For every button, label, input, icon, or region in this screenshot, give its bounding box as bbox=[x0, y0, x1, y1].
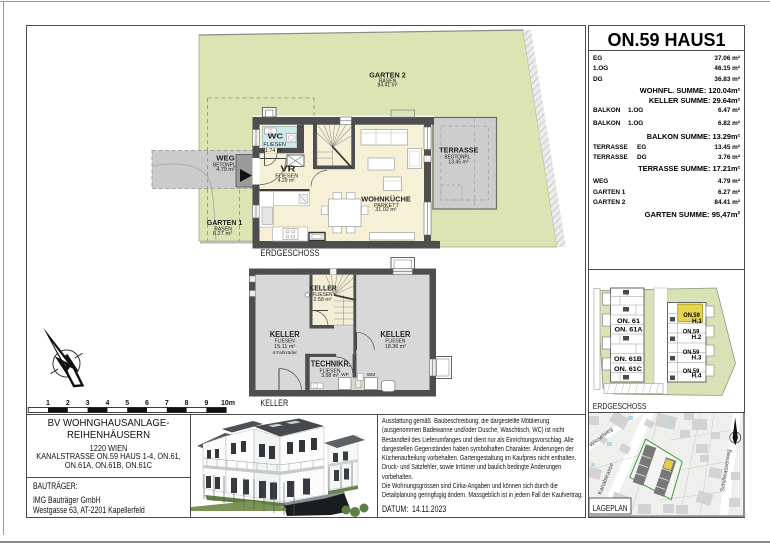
svg-text:1: 1 bbox=[46, 400, 50, 407]
svg-text:ON. 61A: ON. 61A bbox=[615, 327, 644, 334]
svg-text:10m: 10m bbox=[221, 400, 235, 407]
svg-text:VR: VR bbox=[280, 164, 295, 173]
svg-text:9: 9 bbox=[204, 400, 208, 407]
svg-text:6.27 m²: 6.27 m² bbox=[213, 231, 233, 237]
svg-text:5: 5 bbox=[125, 400, 129, 407]
svg-text:TECHNIKR.: TECHNIKR. bbox=[311, 359, 351, 368]
svg-text:4: 4 bbox=[105, 400, 109, 407]
svg-text:13.45 m²: 13.45 m² bbox=[448, 159, 468, 165]
svg-text:H.2: H.2 bbox=[692, 334, 703, 341]
svg-text:FLIESEN: FLIESEN bbox=[263, 142, 286, 148]
svg-text:3: 3 bbox=[86, 400, 90, 407]
svg-text:ERDGESCHOSS: ERDGESCHOSS bbox=[593, 402, 647, 411]
svg-text:H.1: H.1 bbox=[692, 318, 703, 325]
svg-text:8: 8 bbox=[185, 400, 189, 407]
svg-text:2: 2 bbox=[66, 400, 70, 407]
svg-text:TERRASSE: TERRASSE bbox=[439, 146, 478, 155]
svg-text:KELLER: KELLER bbox=[260, 398, 288, 408]
svg-text:H.3: H.3 bbox=[692, 355, 703, 362]
svg-text:ON. 61: ON. 61 bbox=[617, 318, 641, 325]
svg-text:WC: WC bbox=[268, 132, 284, 141]
svg-text:1.74 m²: 1.74 m² bbox=[265, 148, 284, 154]
svg-text:6: 6 bbox=[145, 400, 149, 407]
svg-text:ON. 61C: ON. 61C bbox=[614, 366, 643, 373]
svg-text:4.29 m²: 4.29 m² bbox=[278, 178, 295, 184]
svg-text:WM: WM bbox=[367, 372, 375, 377]
svg-text:ERDGESCHOSS: ERDGESCHOSS bbox=[260, 248, 319, 258]
svg-text:ON. 61B: ON. 61B bbox=[614, 356, 643, 363]
svg-text:4.79 m²: 4.79 m² bbox=[216, 167, 235, 173]
svg-text:31.02 m²: 31.02 m² bbox=[375, 207, 397, 213]
svg-text:84.41 m²: 84.41 m² bbox=[378, 83, 398, 89]
svg-text:2.58 m²: 2.58 m² bbox=[314, 297, 332, 303]
svg-text:LAGEPLAN: LAGEPLAN bbox=[593, 504, 628, 513]
svg-text:3.58 m²: 3.58 m² bbox=[321, 373, 339, 379]
svg-text:KELLER: KELLER bbox=[380, 330, 410, 339]
svg-text:4 Fahrräder: 4 Fahrräder bbox=[272, 350, 297, 355]
svg-text:7: 7 bbox=[165, 400, 169, 407]
svg-text:WP: WP bbox=[341, 372, 349, 377]
svg-text:H.4: H.4 bbox=[692, 372, 703, 379]
svg-text:KELLER: KELLER bbox=[270, 330, 300, 339]
svg-text:18.36 m²: 18.36 m² bbox=[385, 344, 406, 350]
